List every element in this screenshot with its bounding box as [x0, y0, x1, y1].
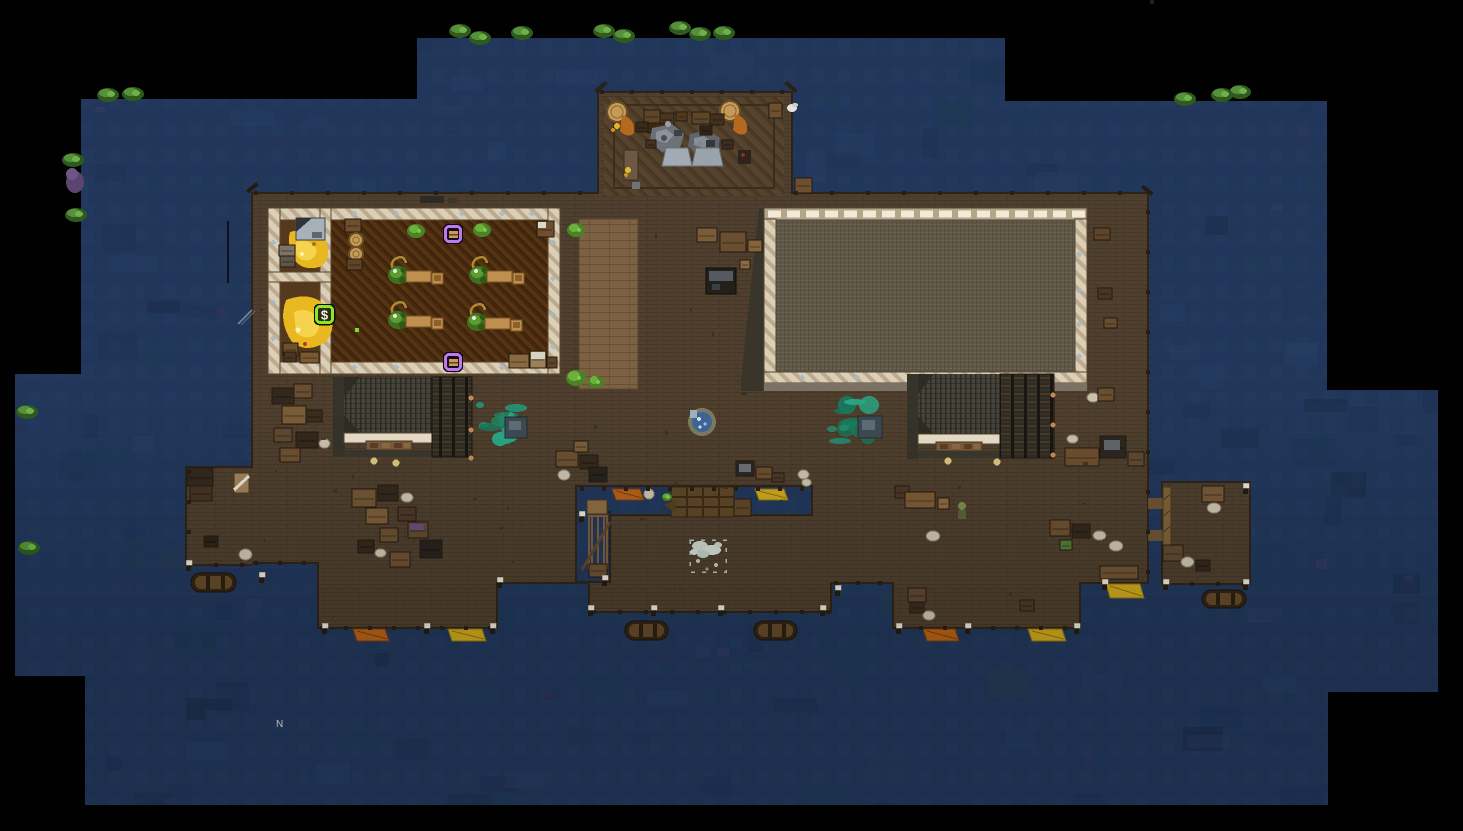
- svg-text:$: $: [321, 308, 329, 323]
